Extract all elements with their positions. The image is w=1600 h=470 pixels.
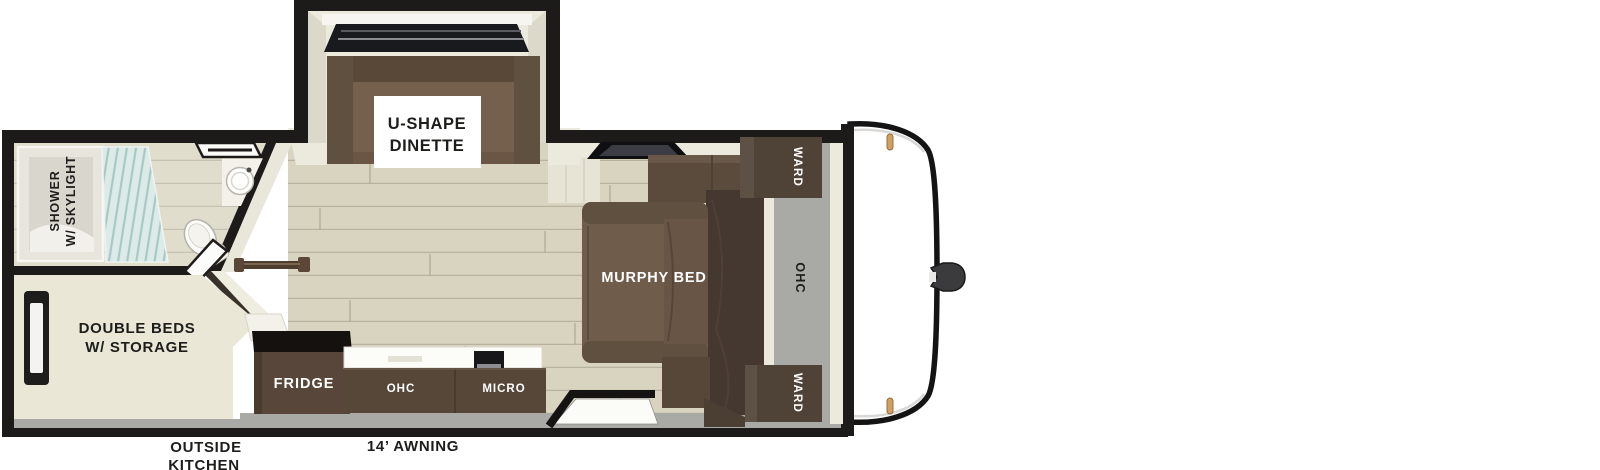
wardrobe-top: WARD — [740, 137, 822, 198]
outside-kitchen-label-line1: OUTSIDE — [170, 439, 242, 456]
shower-label-line2: W/ SKYLIGHT — [64, 156, 78, 247]
wardrobe-top-face — [740, 137, 754, 198]
outside-kitchen-label-line2: KITCHEN — [168, 457, 240, 470]
awning-label: 14’ AWNING — [367, 438, 459, 455]
wardrobe-bottom: WARD — [745, 365, 822, 422]
double-beds-label-line2: W/ STORAGE — [85, 339, 188, 356]
slideout-right-wall — [544, 0, 560, 143]
slideout-left-shade — [308, 11, 326, 143]
ward-top-label: WARD — [791, 147, 803, 187]
sink-faucet-icon — [247, 168, 252, 173]
floorplan-svg: U-SHAPE DINETTE SHOWER W/ SKYLIGHT — [0, 0, 1600, 470]
murphy-bed-sofa: MURPHY BED — [582, 202, 708, 363]
slideout-left-wall — [294, 0, 310, 143]
murphy-bed-frame-edge — [764, 188, 774, 368]
kitchen-ohc-label: OHC — [387, 383, 416, 395]
dinette-label-line2: DINETTE — [390, 137, 465, 155]
dinette-right-arm — [514, 56, 540, 164]
front-wall-inner-face — [830, 142, 843, 424]
bedroom-window-glass — [30, 303, 43, 373]
header-cabinet-top-edge — [648, 155, 740, 163]
murphy-bed-footer-cabinet — [662, 357, 710, 408]
double-beds-label-line1: DOUBLE BEDS — [79, 320, 196, 337]
dinette-label-line1: U-SHAPE — [388, 115, 466, 133]
floorplan-stage: U-SHAPE DINETTE SHOWER W/ SKYLIGHT — [0, 0, 1600, 470]
ward-bottom-label: WARD — [791, 373, 803, 413]
entry-door — [549, 394, 658, 426]
sink-cooktop-mark — [388, 356, 422, 362]
dinette-slideout: U-SHAPE DINETTE — [294, 0, 560, 168]
front-cap-body — [850, 124, 937, 423]
dinette-left-arm — [327, 56, 353, 164]
fridge-side-shade — [254, 352, 262, 414]
fridge-top — [252, 331, 352, 352]
hitch-notch — [929, 272, 936, 282]
ohc-wall-label: OHC — [793, 262, 807, 293]
grab-handle-end — [234, 258, 244, 272]
awning-rail-strip-rear — [14, 419, 240, 428]
micro-label: MICRO — [482, 383, 525, 395]
clearance-light-icon — [887, 134, 893, 150]
grab-handle-bar — [238, 261, 306, 269]
slideout-window-sill — [322, 14, 532, 25]
fridge-label: FRIDGE — [274, 376, 335, 392]
bottom-wall — [2, 428, 848, 437]
roof-vent-glass — [599, 145, 679, 156]
kitchen-counter — [344, 347, 542, 368]
murphy-bed-label: MURPHY BED — [601, 270, 706, 286]
wardrobe-bottom-face — [745, 365, 757, 422]
hitch-coupler-icon — [931, 263, 965, 291]
microwave-handle — [477, 364, 501, 368]
shower-label-line1: SHOWER — [48, 170, 62, 231]
dinette-back-cushion — [327, 56, 540, 82]
clearance-light-icon — [887, 398, 893, 414]
rear-wall — [2, 130, 14, 436]
top-wall-rear — [2, 130, 322, 143]
